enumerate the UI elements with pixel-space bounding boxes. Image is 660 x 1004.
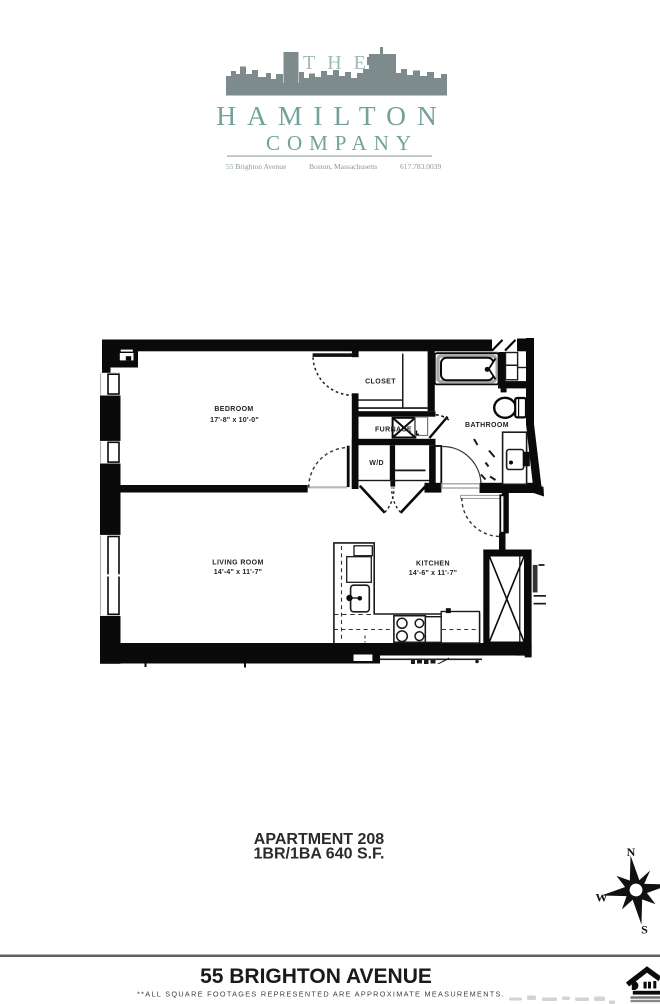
svg-text:N: N [627, 845, 636, 859]
svg-text:LIVING ROOM: LIVING ROOM [212, 560, 263, 567]
svg-text:W: W [596, 891, 608, 905]
svg-text:**ALL SQUARE FOOTAGES REPRESEN: **ALL SQUARE FOOTAGES REPRESENTED ARE AP… [137, 990, 505, 999]
svg-text:55 BRIGHTON AVENUE: 55 BRIGHTON AVENUE [200, 965, 432, 988]
svg-text:W/D: W/D [369, 460, 384, 467]
svg-text:HAMILTON: HAMILTON [216, 100, 448, 131]
svg-text:BEDROOM: BEDROOM [214, 406, 253, 413]
svg-text:S: S [641, 923, 648, 937]
svg-text:COMPANY: COMPANY [266, 131, 418, 155]
svg-text:BATHROOM: BATHROOM [465, 422, 509, 429]
svg-text:17'-8" x 10'-0": 17'-8" x 10'-0" [210, 417, 259, 424]
svg-text:CLOSET: CLOSET [365, 379, 396, 386]
svg-text:14'-6" x 11'-7": 14'-6" x 11'-7" [409, 570, 457, 577]
svg-text:55 Brighton Avenue: 55 Brighton Avenue [226, 162, 287, 171]
svg-text:Boston, Massachusetts: Boston, Massachusetts [309, 162, 377, 171]
svg-text:THE: THE [303, 52, 378, 74]
svg-text:14'-4" x 11'-7": 14'-4" x 11'-7" [214, 569, 262, 576]
svg-text:1BR/1BA 640 S.F.: 1BR/1BA 640 S.F. [253, 846, 384, 863]
svg-text:FURNACE: FURNACE [375, 426, 412, 433]
svg-text:617.783.0039: 617.783.0039 [400, 162, 442, 171]
svg-text:KITCHEN: KITCHEN [416, 561, 450, 568]
